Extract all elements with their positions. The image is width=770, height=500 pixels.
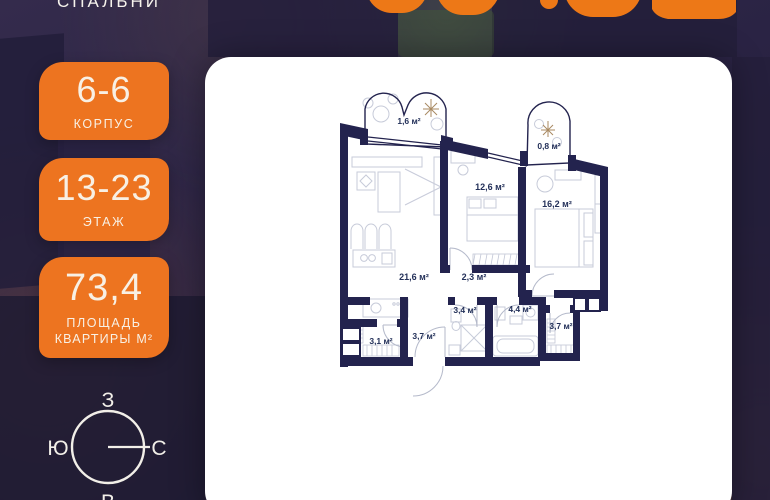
room-area-label: 3,4 м² [453, 305, 476, 315]
room-area-label: 3,7 м² [549, 321, 572, 331]
room-area-label: 3,1 м² [369, 336, 392, 346]
apartment-listing-page: { "header": { "bedrooms_label": "СПАЛЬНИ… [0, 0, 770, 500]
room-area-label: 4,4 м² [508, 304, 531, 314]
compass-west: З [102, 389, 115, 412]
room-area-label: 1,6 м² [397, 116, 420, 126]
area-label-line1: ПЛОЩАДЬ [66, 316, 141, 330]
area-label-line2: КВАРТИРЫ М² [55, 332, 154, 346]
clipped-orange-headline-artwork [0, 0, 770, 22]
balcony-plants [423, 99, 555, 137]
compass-north: С [151, 437, 166, 460]
compass-south: Ю [48, 437, 69, 460]
room-area-label: 12,6 м² [475, 182, 505, 192]
building-badge: 6-6 КОРПУС [39, 62, 169, 140]
building-label: КОРПУС [74, 117, 135, 131]
compass: З Ю С В [48, 387, 168, 500]
room-area-label: 21,6 м² [399, 272, 429, 282]
compass-east: В [101, 491, 115, 500]
floor-badge: 13-23 ЭТАЖ [39, 158, 169, 241]
room-area-label: 16,2 м² [542, 199, 572, 209]
building-value: 6-6 [76, 72, 131, 108]
area-value: 73,4 [65, 269, 143, 307]
floor-plan: 1,6 м² 0,8 м² 12,6 м² 16,2 м² 21,6 м² 2,… [205, 57, 732, 500]
furniture-layer [351, 94, 606, 356]
floor-label: ЭТАЖ [83, 215, 125, 229]
room-area-label: 2,3 м² [462, 272, 487, 282]
room-area-label: 0,8 м² [537, 141, 560, 151]
floor-value: 13-23 [55, 170, 152, 206]
room-area-label: 3,7 м² [412, 331, 435, 341]
city-building [732, 57, 770, 500]
floor-plan-card: 1,6 м² 0,8 м² 12,6 м² 16,2 м² 21,6 м² 2,… [205, 57, 732, 500]
area-badge: 73,4 ПЛОЩАДЬ КВАРТИРЫ М² [39, 257, 169, 358]
